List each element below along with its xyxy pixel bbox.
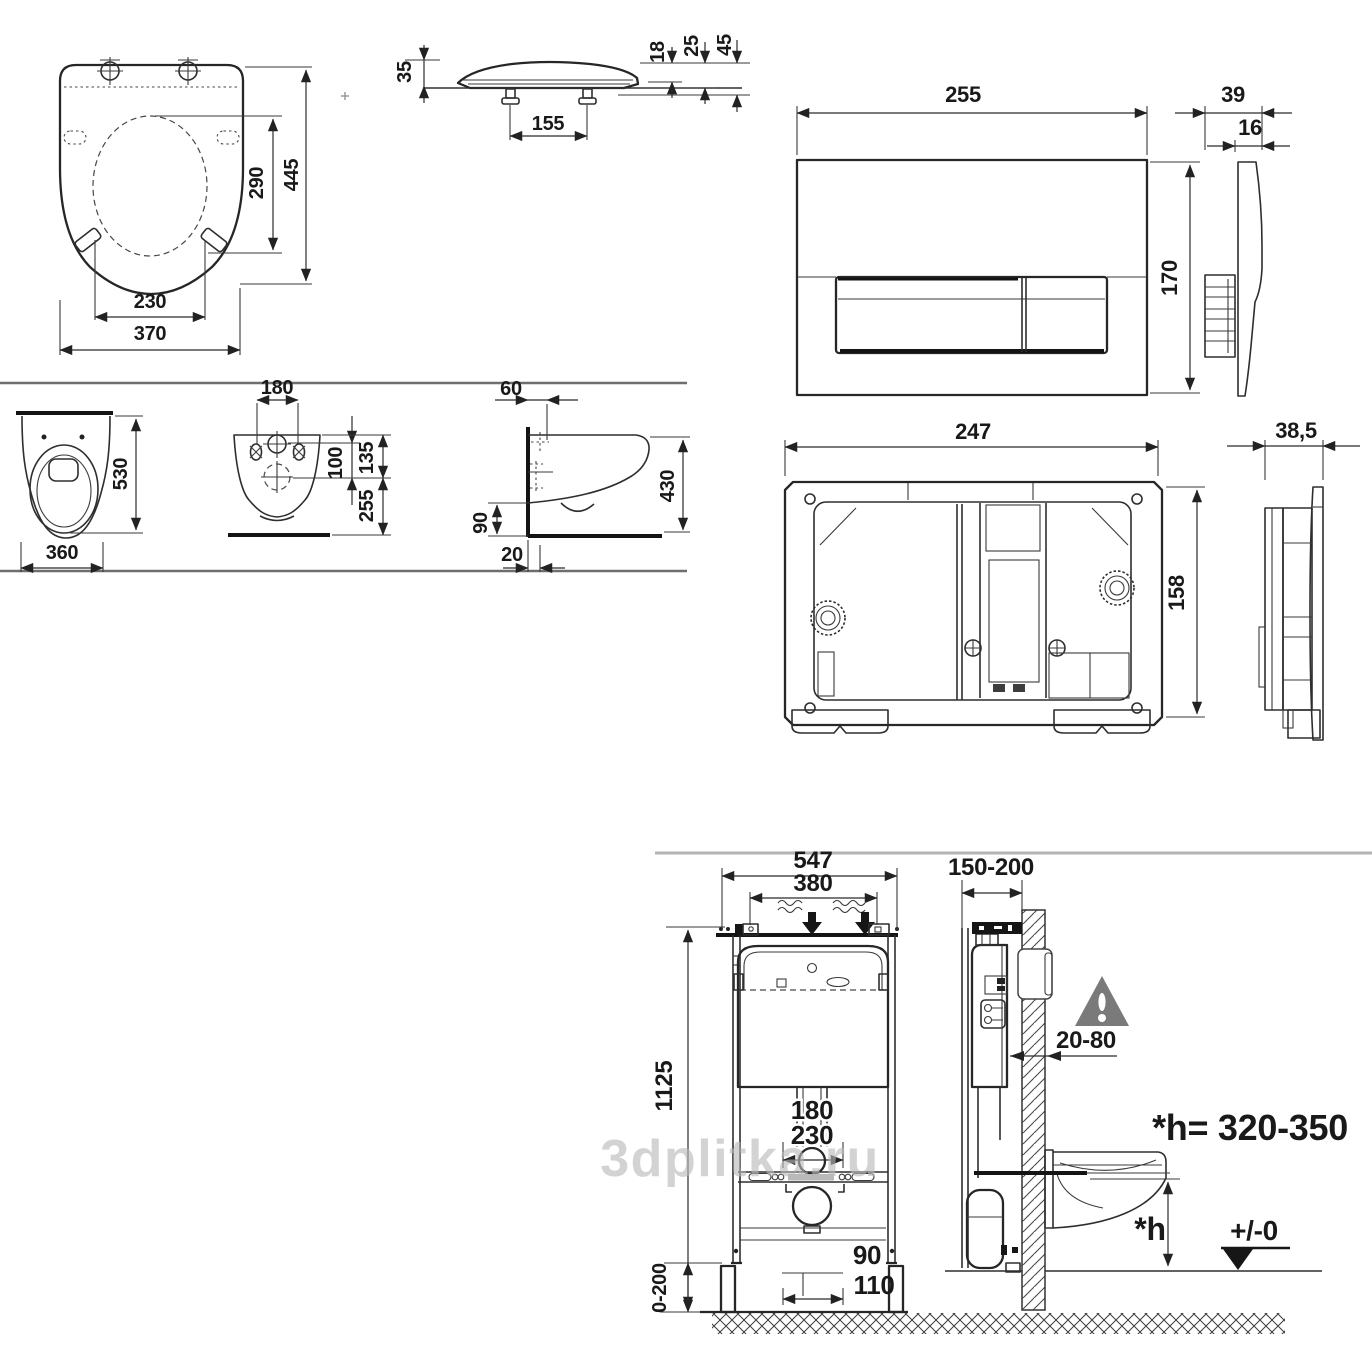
installation-side-view: 150-200 20-80 *h= 320-350 *h +/-0 [945,854,1348,1310]
flush-plate-side-view: 39 16 [1175,82,1292,396]
dim-label-39: 39 [1221,82,1245,107]
note-h-320-350: *h= 320-350 [1152,1107,1348,1148]
dim-label-38-5: 38,5 [1275,418,1317,443]
section-separators [0,92,1372,853]
seat-top-linework [60,57,243,294]
seat-side-view: 35 155 18 25 45 [394,34,750,140]
dim-label-430: 430 [657,470,679,503]
flush-plate-front-view: 255 170 [797,82,1200,395]
dim-label-155: 155 [532,113,565,135]
dim-label-445: 445 [281,159,303,192]
flush-plate-side-dimensions: 39 16 [1175,82,1292,152]
dim-label-530: 530 [110,458,132,491]
dim-label-100: 100 [325,447,347,480]
dim-label-18: 18 [647,41,669,63]
dim-label-110: 110 [853,1270,894,1300]
dim-label-180-rear: 180 [261,377,294,399]
installation-front-view: 547 380 1125 180 230 90 110 0-200 [649,847,1285,1334]
bowl-side-view: 60 430 90 20 [470,378,690,572]
frame-front-dimensions: 247 158 [785,419,1205,717]
insert-arrow-icon [802,912,822,935]
dim-label-20: 20 [501,544,523,566]
bowl-rear-view: 180 100 135 255 [228,377,391,535]
dim-label-380: 380 [793,870,832,897]
dim-label-247: 247 [955,419,991,444]
dim-label-370: 370 [134,323,167,345]
dim-label-135: 135 [356,442,378,475]
flush-plate-dimensions: 255 170 [797,82,1200,393]
frame-side-dimensions: 38,5 [1227,418,1360,480]
dim-label-255-rear: 255 [356,490,378,523]
flush-plate-side-linework [1205,162,1262,396]
frame-side-view: 38,5 [1227,418,1360,740]
dim-label-90-install: 90 [853,1240,881,1270]
registration-cross [341,92,349,100]
dim-label-25: 25 [681,35,703,57]
bowl-front-view: 530 360 [16,413,143,572]
bowl-front-linework [16,413,113,538]
bowl-side-linework [528,427,662,537]
bowl-rear-linework [228,431,330,535]
flush-plate-linework [797,160,1147,395]
seat-top-view: 445 290 230 370 [60,57,312,355]
dim-label-h: *h [1134,1211,1165,1247]
dim-label-45: 45 [714,34,736,56]
technical-drawing-sheet: 445 290 230 370 [0,0,1372,1372]
dim-label-datum: +/-0 [1230,1215,1278,1246]
dim-label-90-side: 90 [470,512,492,534]
frame-front-linework [785,482,1162,733]
frame-side-linework [1259,487,1323,740]
dim-label-230: 230 [134,291,167,313]
seat-top-dimensions: 445 290 230 370 [60,67,312,355]
ground-hatch [712,1313,1285,1334]
bowl-side-dimensions: 60 430 90 20 [470,378,690,572]
dim-label-290: 290 [246,167,268,200]
dim-label-360: 360 [46,542,79,564]
wall-sleeve [1018,949,1052,999]
seat-side-linework [423,62,742,104]
dim-label-158: 158 [1164,575,1189,611]
frame-front-view: 247 158 [785,419,1205,733]
drawing-canvas: 445 290 230 370 [0,0,1372,1372]
dim-label-16: 16 [1238,115,1262,140]
dim-label-0-200: 0-200 [649,1263,671,1313]
dim-label-20-80: 20-80 [1056,1027,1116,1054]
dim-label-60: 60 [500,378,522,400]
warning-icon [1075,976,1129,1026]
datum-triangle-icon [1223,1249,1253,1270]
dim-label-1125: 1125 [651,1061,678,1112]
dim-label-255: 255 [945,82,981,107]
installation-front-dimensions: 547 380 1125 180 230 90 110 0-200 [649,847,897,1313]
watermark-text: 3dplitka.ru [600,1130,879,1188]
dim-label-150-200: 150-200 [948,854,1034,881]
dim-label-35: 35 [394,61,416,83]
dim-label-170: 170 [1157,260,1182,296]
